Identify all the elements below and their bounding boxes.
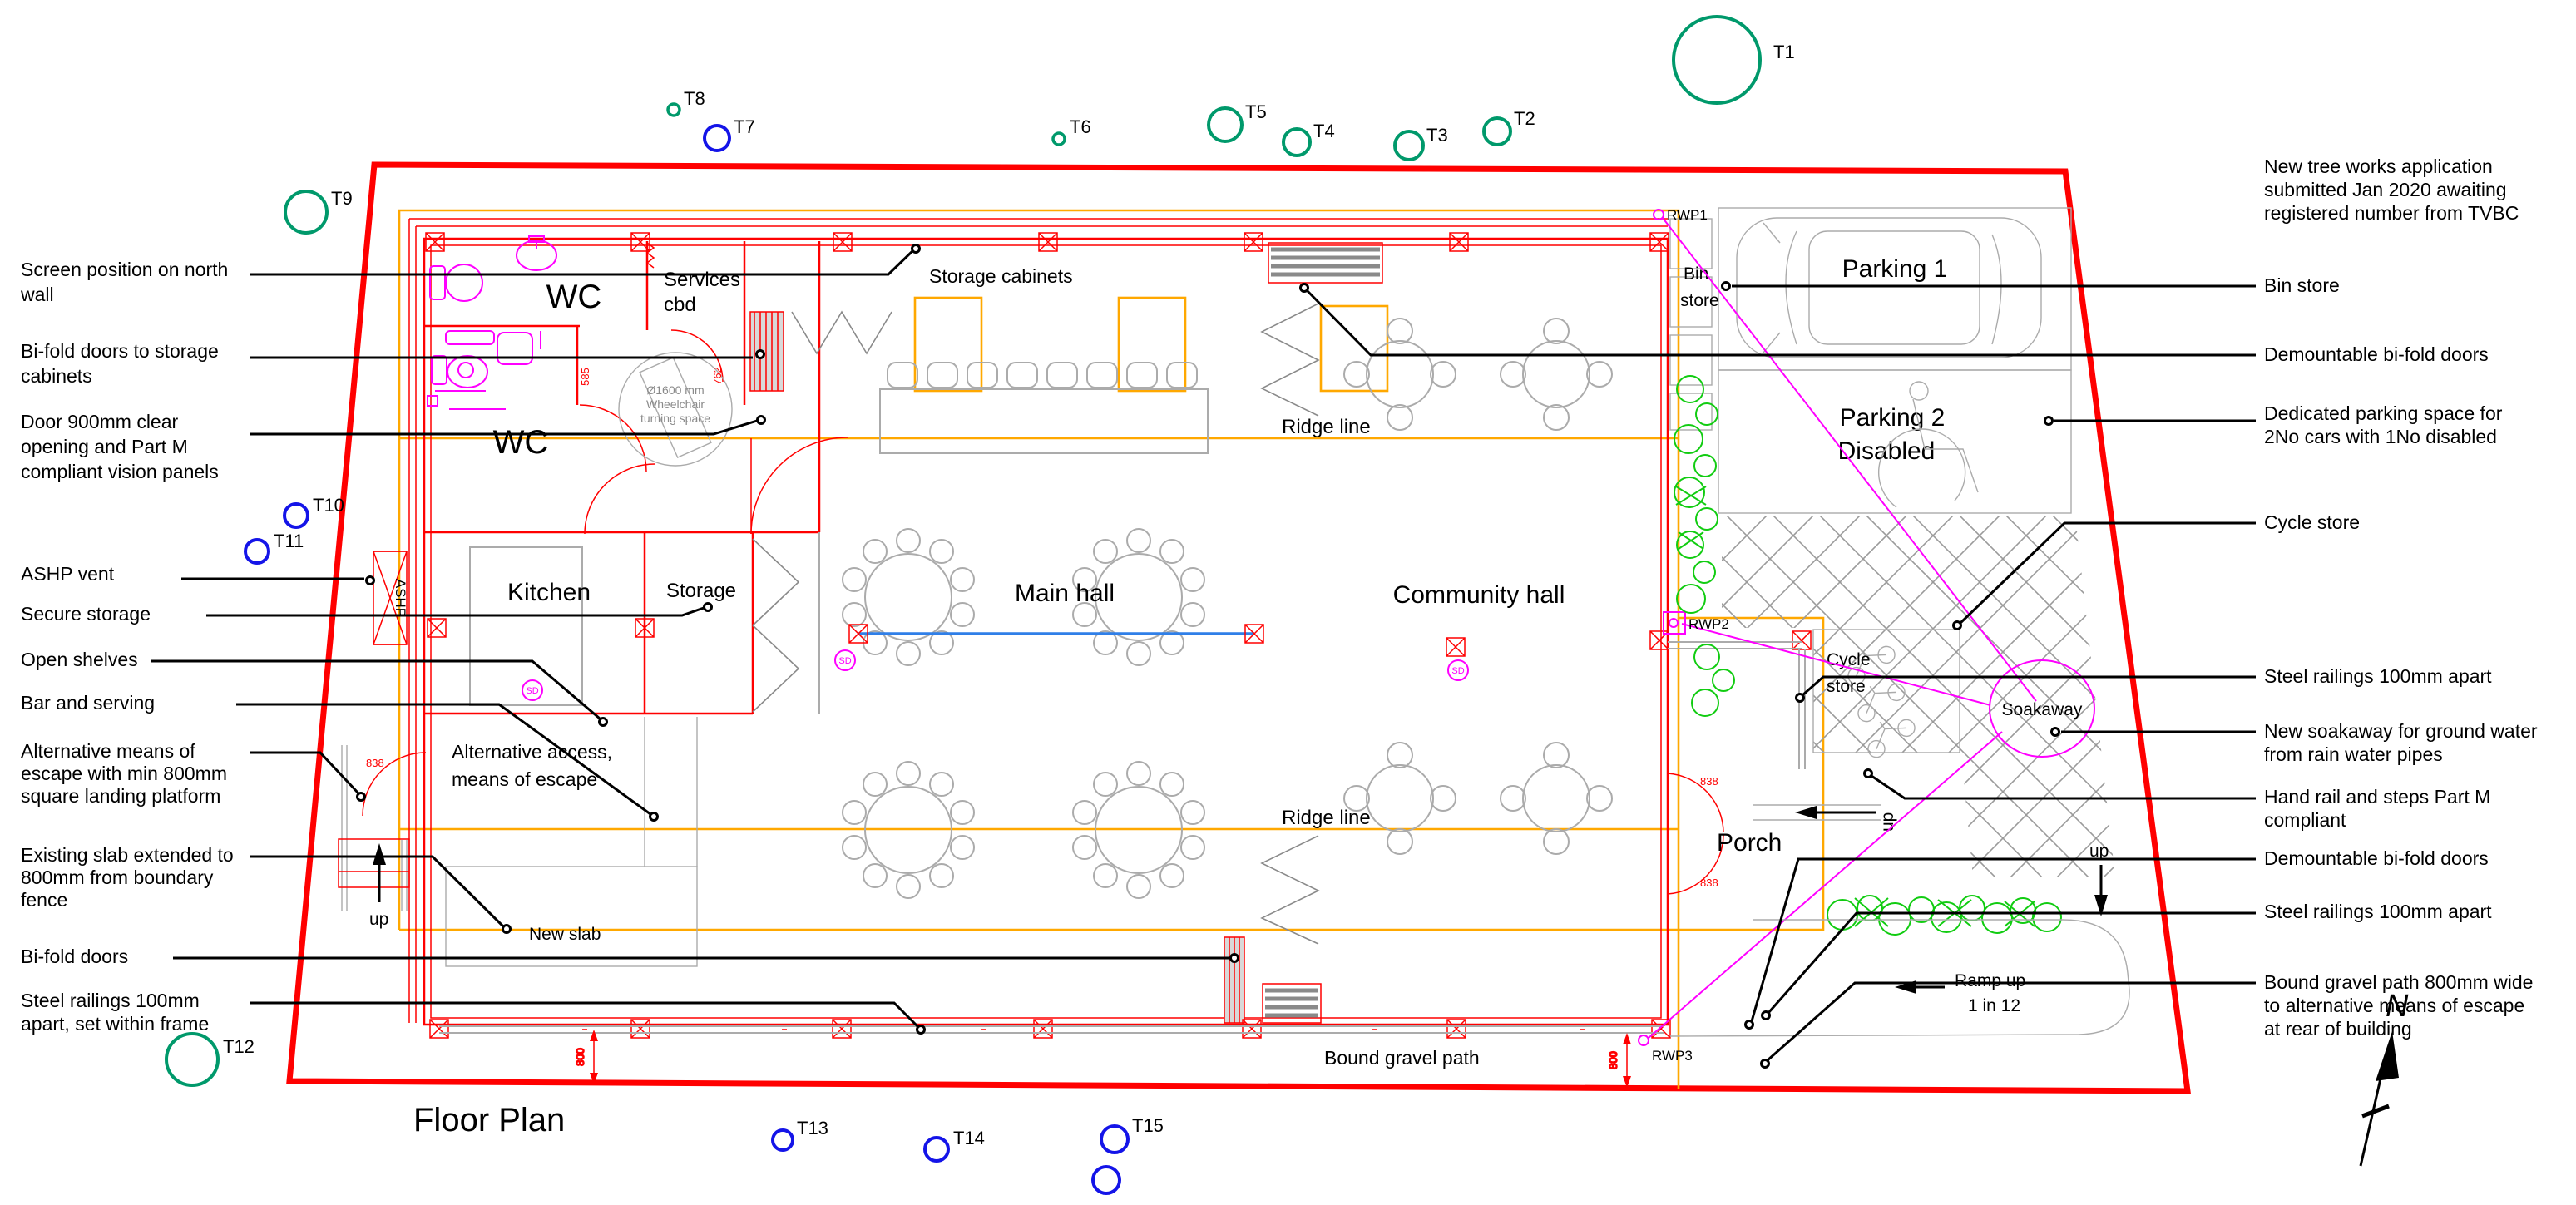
annotation: submitted Jan 2020 awaiting bbox=[2264, 179, 2507, 200]
wheelchair-label-3: turning space bbox=[640, 412, 710, 425]
community-table-1 bbox=[1344, 319, 1456, 430]
svg-text:T12: T12 bbox=[223, 1036, 255, 1057]
annotation: Door 900mm clear bbox=[21, 411, 179, 432]
ridge-line-label-1: Ridge line bbox=[1282, 416, 1371, 438]
up-label-porch: up bbox=[1878, 812, 1897, 832]
svg-text:T14: T14 bbox=[953, 1128, 985, 1148]
up-arrow-east: up bbox=[2089, 842, 2109, 916]
tree-T4: T4 bbox=[1283, 121, 1335, 156]
tree-T2: T2 bbox=[1484, 108, 1535, 145]
ramp-label-1: Ramp up bbox=[1955, 971, 2025, 990]
col bbox=[1792, 631, 1811, 649]
bin-store-label-1: Bin bbox=[1684, 264, 1708, 284]
services-label-2: cbd bbox=[664, 294, 696, 316]
porch-label: Porch bbox=[1717, 829, 1782, 857]
col bbox=[1447, 1020, 1466, 1038]
svg-text:SD: SD bbox=[1451, 666, 1464, 676]
wheelchair-label-2: Wheelchair bbox=[646, 398, 705, 411]
annotation: escape with min 800mm bbox=[21, 763, 227, 784]
col bbox=[1034, 1020, 1052, 1038]
long-table-chairs bbox=[888, 363, 1197, 388]
ridge-line-label-2: Ridge line bbox=[1282, 807, 1371, 829]
tree-T10: T10 bbox=[284, 495, 344, 527]
up-label-left: up bbox=[369, 910, 388, 929]
ashp-vent: ASHP bbox=[373, 551, 408, 644]
zigzag-partitions bbox=[753, 304, 1318, 944]
dim-838-porch-bottom: 838 bbox=[1700, 877, 1718, 889]
col bbox=[631, 1020, 650, 1038]
annotation: Bin store bbox=[2264, 274, 2340, 296]
svg-text:SD: SD bbox=[526, 686, 538, 696]
dim-800-right: 800 bbox=[1607, 1033, 1631, 1088]
col bbox=[426, 233, 444, 251]
svg-text:SD: SD bbox=[838, 656, 851, 666]
svg-text:RWP3: RWP3 bbox=[1652, 1048, 1693, 1064]
col bbox=[1039, 233, 1057, 251]
round-table-1 bbox=[843, 529, 974, 665]
rooflight-3 bbox=[1321, 306, 1387, 391]
coat-zigzag-top bbox=[792, 312, 892, 353]
door-wc2-arc bbox=[585, 464, 655, 534]
wheelchair-label-1: Ø1600 mm bbox=[646, 383, 704, 397]
annotation: wall bbox=[20, 284, 54, 305]
chairs bbox=[843, 529, 974, 665]
gravel-path-outline bbox=[1670, 920, 2129, 1036]
annotation: Demountable bi-fold doors bbox=[2264, 343, 2489, 365]
annotation: Screen position on north bbox=[21, 259, 228, 280]
dim-762: 762 bbox=[711, 367, 724, 385]
partition-zigzag-upper bbox=[1262, 304, 1318, 416]
bifold-south-demountable bbox=[1263, 984, 1321, 1023]
annotation: Steel railings 100mm apart bbox=[2264, 665, 2492, 687]
alt-access-label-2: means of escape bbox=[452, 768, 597, 790]
dim-838-escape: 838 bbox=[366, 757, 384, 769]
annotation: New tree works application bbox=[2264, 156, 2493, 177]
leaders-right bbox=[1301, 283, 2257, 1068]
annotation: Bar and serving bbox=[21, 692, 155, 714]
annotation: Hand rail and steps Part M bbox=[2264, 786, 2490, 807]
annotation: cabinets bbox=[21, 365, 92, 387]
svg-text:T2: T2 bbox=[1514, 108, 1535, 129]
tree-T11: T11 bbox=[245, 531, 304, 563]
smoke-detectors: SD SD SD bbox=[522, 650, 1468, 700]
north-label: N bbox=[2386, 989, 2409, 1024]
svg-text:RWP2: RWP2 bbox=[1688, 616, 1729, 632]
dim-800-left: 800 bbox=[574, 1030, 598, 1084]
sanitary-fixtures bbox=[428, 236, 556, 409]
partition-zigzag-lower bbox=[1262, 836, 1318, 944]
annotation: 2No cars with 1No disabled bbox=[2264, 426, 2497, 447]
tree-T8: T8 bbox=[668, 88, 705, 116]
annotation: Demountable bi-fold doors bbox=[2264, 847, 2489, 869]
alt-access-label-1: Alternative access, bbox=[452, 741, 612, 763]
svg-text:T8: T8 bbox=[684, 88, 705, 109]
tree-T14: T14 bbox=[925, 1128, 985, 1161]
svg-text:800: 800 bbox=[1607, 1051, 1619, 1069]
floor-plan-title: Floor Plan bbox=[413, 1102, 565, 1138]
tree-T9: T9 bbox=[285, 188, 353, 233]
annotation: Secure storage bbox=[21, 603, 151, 625]
svg-text:T10: T10 bbox=[313, 495, 344, 516]
long-table bbox=[880, 389, 1208, 453]
crosshatch-area bbox=[1722, 516, 2115, 877]
annotation: from rain water pipes bbox=[2264, 743, 2443, 765]
tree-unlabelled bbox=[1093, 1167, 1120, 1193]
community-table-2 bbox=[1501, 319, 1612, 430]
ashp-label: ASHP bbox=[393, 579, 408, 617]
svg-text:800: 800 bbox=[574, 1048, 586, 1066]
svg-text:T5: T5 bbox=[1245, 101, 1267, 122]
tree-T13: T13 bbox=[773, 1118, 828, 1150]
rwp-2: RWP2 bbox=[1664, 612, 1729, 634]
tree-T3: T3 bbox=[1395, 125, 1448, 160]
storage-label: Storage bbox=[666, 580, 736, 602]
svg-text:T1: T1 bbox=[1773, 42, 1795, 62]
svg-text:T7: T7 bbox=[734, 116, 755, 137]
annotation: compliant vision panels bbox=[21, 461, 219, 482]
storage-folding-doors bbox=[753, 539, 799, 712]
annotation: compliant bbox=[2264, 809, 2346, 831]
rooflight-2 bbox=[1119, 298, 1185, 391]
up-arrow-left bbox=[373, 843, 386, 902]
plan-labels: Storage cabinets Ridge line Ridge line B… bbox=[413, 265, 1480, 1138]
annotation: Open shelves bbox=[21, 649, 138, 670]
new-slab-label: New slab bbox=[529, 925, 601, 944]
sd-2: SD bbox=[835, 650, 855, 670]
car bbox=[1737, 218, 2041, 358]
col bbox=[1446, 638, 1465, 656]
tree-T6: T6 bbox=[1053, 116, 1091, 145]
sd-1: SD bbox=[522, 680, 542, 700]
annotation: Bi-fold doors to storage bbox=[21, 340, 219, 362]
rooflight-1 bbox=[915, 298, 981, 391]
services-label-1: Services bbox=[664, 269, 740, 291]
annotation: Bi-fold doors bbox=[21, 946, 128, 967]
south-railing bbox=[439, 1026, 1664, 1033]
col bbox=[833, 1020, 851, 1038]
annotation: registered number from TVBC bbox=[2264, 202, 2519, 224]
col bbox=[1450, 233, 1468, 251]
annotation: Steel railings 100mm apart bbox=[2264, 901, 2492, 922]
col bbox=[430, 1020, 448, 1038]
ramp-label-2: 1 in 12 bbox=[1968, 996, 2020, 1015]
parking-area: Parking 1 Parking 2 Disabled bbox=[1718, 208, 2071, 513]
ramp: Ramp up 1 in 12 bbox=[1895, 971, 2025, 1015]
annotations-left: Screen position on north wall Bi-fold do… bbox=[20, 259, 234, 1035]
svg-text:T11: T11 bbox=[274, 531, 304, 551]
storage-cabinets-label: Storage cabinets bbox=[929, 265, 1073, 287]
bound-gravel-path-label: Bound gravel path bbox=[1324, 1047, 1480, 1069]
door-hall-arc bbox=[751, 437, 848, 534]
rwp-3: RWP3 bbox=[1639, 1035, 1693, 1064]
annotation: Cycle store bbox=[2264, 511, 2360, 533]
leaders-left bbox=[151, 245, 1239, 1034]
col bbox=[1244, 233, 1263, 251]
annotation: Existing slab extended to bbox=[21, 844, 234, 866]
cycle-store-label-2: store bbox=[1827, 677, 1866, 696]
soakaway-label: Soakaway bbox=[2002, 700, 2083, 719]
tree-T12: T12 bbox=[166, 1034, 255, 1085]
main-hall-label: Main hall bbox=[1015, 580, 1115, 607]
sd-3: SD bbox=[1448, 660, 1468, 680]
bifold-storage-cabinets bbox=[750, 312, 784, 391]
bifold-south-vertical bbox=[1224, 937, 1244, 1023]
svg-text:RWP1: RWP1 bbox=[1667, 207, 1708, 223]
annotation: Alternative means of bbox=[21, 740, 195, 762]
annotation: 800mm from boundary bbox=[21, 867, 214, 888]
community-table-3 bbox=[1344, 743, 1456, 854]
annotation: Steel railings 100mm bbox=[21, 990, 200, 1011]
svg-text:T9: T9 bbox=[331, 188, 353, 209]
tree-T5: T5 bbox=[1209, 101, 1267, 141]
wc1-label: WC bbox=[546, 279, 602, 315]
up-arrow-porch bbox=[1795, 806, 1876, 819]
svg-text:T3: T3 bbox=[1426, 125, 1448, 146]
wc2-label: WC bbox=[493, 424, 549, 461]
cycle-store-label-1: Cycle bbox=[1827, 650, 1871, 669]
annotations-right: New tree works application submitted Jan… bbox=[2264, 156, 2538, 1040]
annotation: fence bbox=[21, 889, 67, 911]
dim-838-porch-top: 838 bbox=[1700, 775, 1718, 788]
community-table-4 bbox=[1501, 743, 1612, 854]
annotation: New soakaway for ground water bbox=[2264, 720, 2538, 742]
annotation: apart, set within frame bbox=[21, 1013, 209, 1035]
annotation: square landing platform bbox=[21, 785, 220, 807]
annotation: opening and Part M bbox=[21, 436, 188, 457]
kitchen-label: Kitchen bbox=[507, 579, 591, 606]
col bbox=[833, 233, 852, 251]
annotation: ASHP vent bbox=[21, 563, 115, 585]
annotation: Dedicated parking space for bbox=[2264, 402, 2503, 424]
col bbox=[1650, 233, 1669, 251]
svg-text:T4: T4 bbox=[1313, 121, 1335, 141]
tree-T7: T7 bbox=[705, 116, 755, 151]
parking1-label: Parking 1 bbox=[1842, 255, 1948, 283]
parking2-label-2: Disabled bbox=[1838, 437, 1936, 465]
tree-T1: T1 bbox=[1674, 17, 1795, 103]
svg-text:T15: T15 bbox=[1132, 1115, 1164, 1136]
tree-T15: T15 bbox=[1101, 1115, 1164, 1153]
col bbox=[1243, 1020, 1261, 1038]
parking2-label-1: Parking 2 bbox=[1840, 404, 1946, 432]
community-hall-label: Community hall bbox=[1393, 581, 1565, 609]
dim-585: 585 bbox=[579, 368, 591, 386]
bifold-north-demountable bbox=[1268, 243, 1382, 283]
svg-text:T6: T6 bbox=[1070, 116, 1091, 137]
floor-plan-drawing: Ø1600 mm Wheelchair turning space 585 76… bbox=[0, 0, 2576, 1205]
building-walls bbox=[409, 219, 1668, 1025]
svg-text:T13: T13 bbox=[797, 1118, 828, 1138]
bin-store-label-2: store bbox=[1680, 291, 1719, 310]
